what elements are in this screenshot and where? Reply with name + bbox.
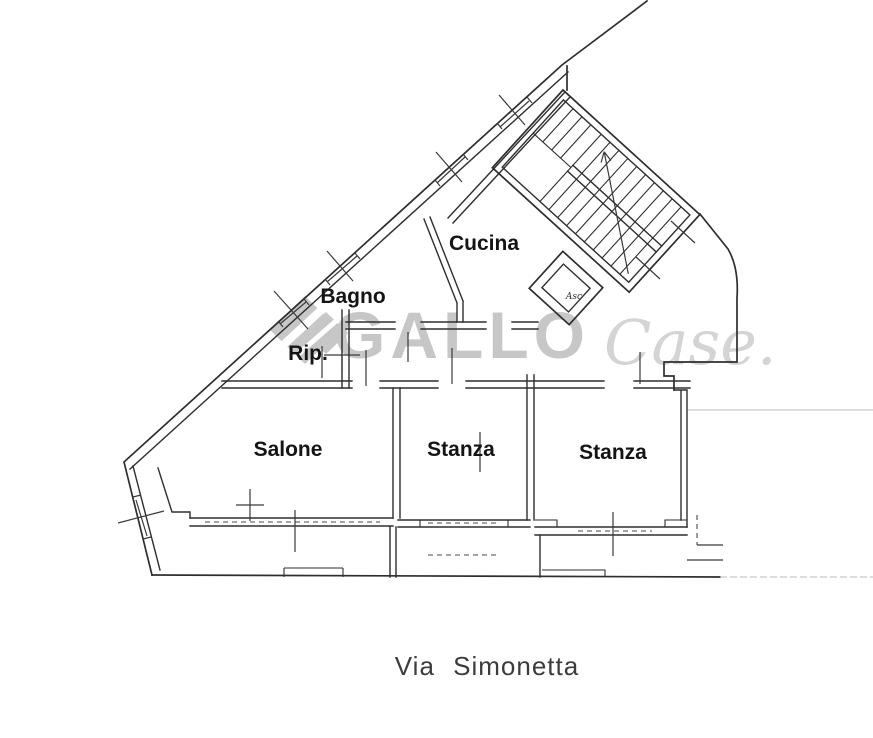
floorplan-page: GALLO Case. bbox=[0, 0, 873, 738]
window-3 bbox=[325, 251, 360, 285]
label-stanza-2: Stanza bbox=[579, 441, 647, 464]
watermark-script-text: Case. bbox=[604, 306, 777, 379]
floor-plan-drawing: GALLO Case. bbox=[0, 0, 873, 738]
staircase bbox=[492, 90, 699, 292]
facade-walls bbox=[124, 1, 873, 577]
label-salone: Salone bbox=[254, 438, 323, 461]
label-cucina: Cucina bbox=[449, 232, 519, 255]
label-bagno: Bagno bbox=[320, 285, 385, 308]
street-caption: Via Simonetta bbox=[395, 651, 579, 681]
window-2 bbox=[435, 152, 468, 186]
label-rip: Rip. bbox=[288, 342, 328, 365]
south-walls-and-balcony bbox=[158, 468, 723, 577]
window-1 bbox=[497, 95, 532, 129]
watermark: GALLO Case. bbox=[270, 296, 777, 379]
label-stanza-1: Stanza bbox=[427, 438, 495, 461]
elevator-label: Asc bbox=[565, 292, 582, 302]
